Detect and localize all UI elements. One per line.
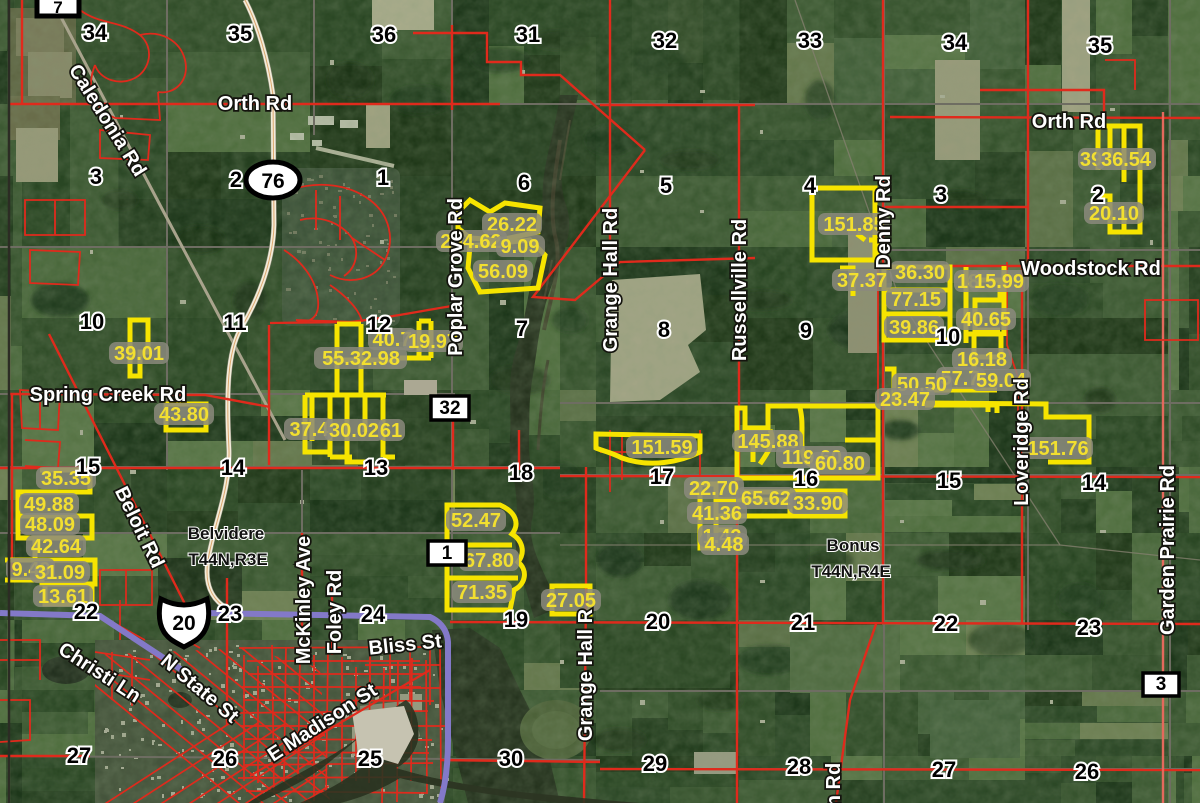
svg-text:22: 22: [934, 611, 958, 636]
svg-text:Denny Rd: Denny Rd: [873, 175, 895, 268]
svg-text:7: 7: [53, 0, 62, 17]
svg-text:71.35: 71.35: [457, 582, 507, 604]
svg-text:151.59: 151.59: [631, 437, 692, 459]
svg-text:67.80: 67.80: [464, 550, 514, 572]
svg-text:56.09: 56.09: [478, 261, 528, 283]
svg-text:10: 10: [80, 309, 104, 334]
svg-text:10: 10: [936, 324, 960, 349]
svg-text:40.65: 40.65: [961, 309, 1011, 331]
svg-text:43.80: 43.80: [159, 404, 209, 426]
svg-text:4.48: 4.48: [705, 534, 744, 556]
svg-text:Loveridge Rd: Loveridge Rd: [1011, 378, 1033, 506]
svg-text:20: 20: [646, 609, 670, 634]
svg-text:39.01: 39.01: [114, 343, 164, 365]
svg-text:19: 19: [504, 607, 528, 632]
svg-text:3: 3: [90, 164, 102, 189]
svg-text:32: 32: [439, 398, 460, 419]
svg-text:30.02: 30.02: [329, 420, 379, 442]
svg-text:3: 3: [1156, 674, 1167, 695]
svg-text:Russellville Rd: Russellville Rd: [729, 219, 751, 361]
svg-text:39.86: 39.86: [889, 317, 939, 339]
svg-text:6: 6: [518, 170, 530, 195]
svg-text:60.80: 60.80: [815, 453, 865, 475]
svg-text:35: 35: [228, 21, 252, 46]
svg-text:29: 29: [643, 751, 667, 776]
svg-text:Belvidere: Belvidere: [188, 524, 265, 543]
svg-text:Grange Hall Rd: Grange Hall Rd: [600, 208, 622, 352]
svg-text:2: 2: [1092, 182, 1104, 207]
svg-text:Grange Hall R: Grange Hall R: [575, 608, 597, 741]
svg-text:36.54: 36.54: [1101, 149, 1152, 171]
svg-text:26: 26: [1075, 759, 1099, 784]
svg-text:49.88: 49.88: [24, 494, 74, 516]
svg-text:20: 20: [172, 612, 195, 635]
svg-text:2: 2: [230, 167, 242, 192]
svg-text:36: 36: [372, 22, 396, 47]
svg-text:25: 25: [358, 746, 382, 771]
svg-text:151.76: 151.76: [1027, 438, 1088, 460]
svg-text:77.15: 77.15: [891, 289, 941, 311]
svg-text:28: 28: [787, 754, 811, 779]
svg-text:12: 12: [367, 312, 391, 337]
svg-text:McKinley Ave: McKinley Ave: [293, 536, 315, 665]
svg-text:9: 9: [800, 318, 812, 343]
svg-text:16: 16: [794, 466, 818, 491]
svg-text:65.62: 65.62: [741, 488, 791, 510]
svg-text:1: 1: [442, 543, 453, 564]
svg-text:27: 27: [932, 757, 956, 782]
svg-text:35: 35: [1088, 33, 1112, 58]
svg-text:15.99: 15.99: [974, 271, 1024, 293]
svg-text:Poplar Grove Rd: Poplar Grove Rd: [445, 198, 467, 356]
svg-text:15: 15: [937, 468, 961, 493]
svg-text:55.32.98: 55.32.98: [322, 348, 400, 370]
svg-text:22: 22: [74, 599, 98, 624]
svg-text:21: 21: [791, 610, 815, 635]
svg-text:13: 13: [364, 455, 388, 480]
svg-text:23.47: 23.47: [880, 389, 930, 411]
svg-text:24: 24: [361, 602, 386, 627]
svg-text:14: 14: [221, 455, 246, 480]
svg-text:4: 4: [804, 173, 817, 198]
svg-text:17: 17: [650, 464, 674, 489]
svg-text:61: 61: [380, 420, 402, 442]
svg-text:26: 26: [213, 746, 237, 771]
svg-text:31: 31: [516, 22, 540, 47]
svg-text:T44N,R4E: T44N,R4E: [811, 562, 890, 581]
svg-text:22.70: 22.70: [689, 478, 739, 500]
svg-text:n Rd: n Rd: [823, 763, 845, 803]
svg-text:7: 7: [516, 316, 528, 341]
svg-text:Woodstock Rd: Woodstock Rd: [1021, 258, 1161, 280]
svg-text:14: 14: [1082, 470, 1107, 495]
svg-text:30: 30: [499, 746, 523, 771]
svg-text:37.4: 37.4: [290, 419, 330, 441]
svg-text:76: 76: [261, 170, 284, 193]
svg-text:27: 27: [67, 743, 91, 768]
svg-text:33: 33: [798, 28, 822, 53]
svg-text:T44N,R3E: T44N,R3E: [188, 550, 267, 569]
svg-text:3: 3: [935, 182, 947, 207]
svg-text:11: 11: [223, 310, 246, 335]
svg-text:23: 23: [1077, 615, 1101, 640]
svg-text:52.47: 52.47: [451, 510, 501, 532]
svg-text:Spring Creek Rd: Spring Creek Rd: [30, 384, 187, 406]
svg-text:9.09: 9.09: [501, 236, 540, 258]
svg-text:18: 18: [509, 460, 533, 485]
svg-text:15: 15: [76, 454, 100, 479]
svg-text:Orth Rd: Orth Rd: [218, 93, 292, 115]
svg-text:31.09: 31.09: [35, 562, 85, 584]
svg-text:48.09: 48.09: [25, 514, 75, 536]
svg-text:Orth Rd: Orth Rd: [1032, 111, 1106, 133]
svg-text:34: 34: [83, 20, 108, 45]
svg-text:1: 1: [377, 165, 389, 190]
svg-text:27.05: 27.05: [546, 590, 596, 612]
svg-text:Foley Rd: Foley Rd: [324, 570, 346, 654]
svg-text:37.37: 37.37: [837, 270, 887, 292]
svg-text:36.30: 36.30: [895, 262, 945, 284]
svg-text:33.90: 33.90: [793, 493, 843, 515]
svg-text:5: 5: [660, 173, 672, 198]
svg-text:Bonus: Bonus: [827, 536, 880, 555]
svg-text:41.36: 41.36: [692, 503, 742, 525]
svg-text:34: 34: [943, 30, 968, 55]
svg-text:42.64: 42.64: [31, 536, 82, 558]
svg-text:23: 23: [218, 601, 242, 626]
svg-text:8: 8: [658, 317, 670, 342]
svg-text:Garden Prairie Rd: Garden Prairie Rd: [1157, 465, 1179, 635]
svg-text:32: 32: [653, 28, 677, 53]
